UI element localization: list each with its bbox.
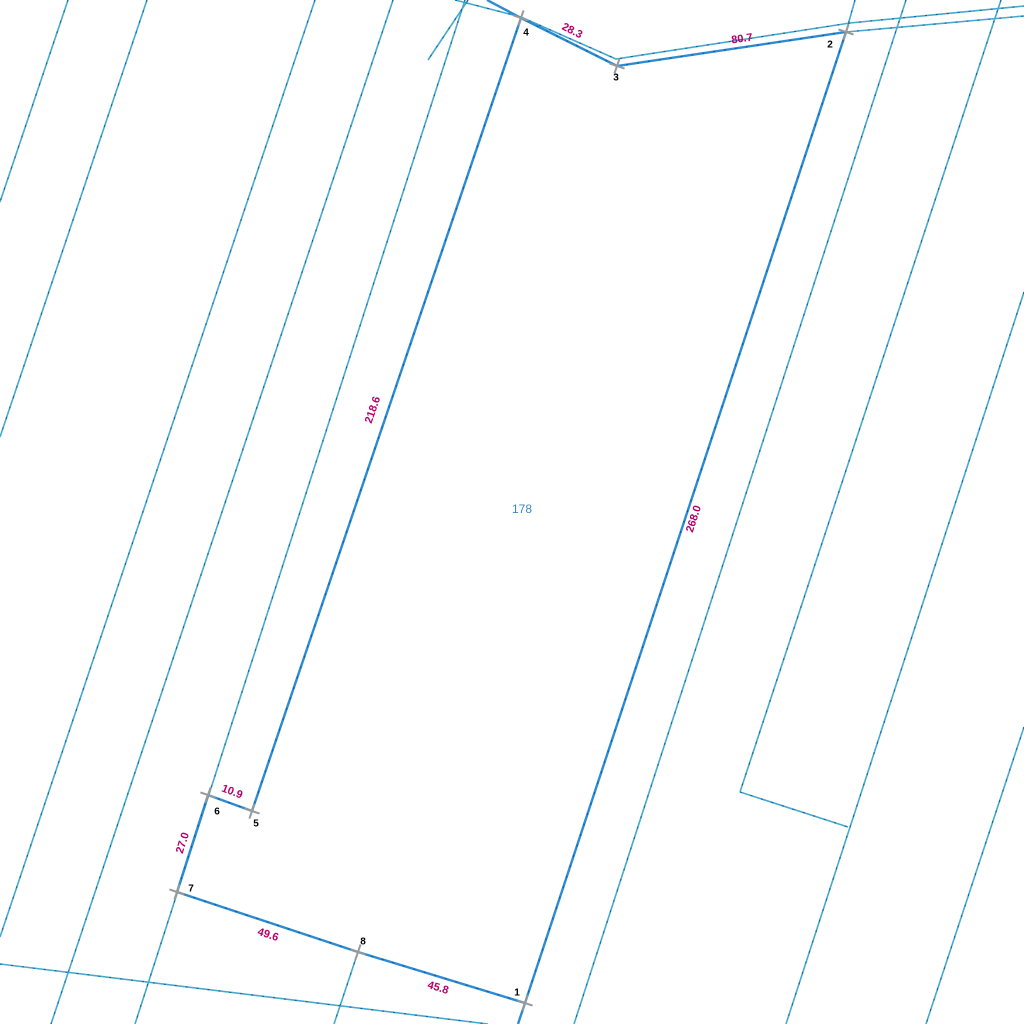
vertex-number-label: 8: [360, 937, 366, 948]
vertex-cross-marker[interactable]: [242, 801, 262, 821]
boundary-line: [740, 0, 1001, 792]
vertex-number-label: 7: [188, 884, 194, 895]
vertex-cross-marker[interactable]: [511, 8, 531, 28]
boundary-line: [0, 0, 315, 937]
edge-length-label: 49.6: [256, 926, 280, 944]
labels-layer: 12345678268.080.728.3218.610.927.049.645…: [174, 21, 833, 999]
vertex-number-label: 1: [514, 988, 520, 999]
edge-length-label: 80.7: [731, 32, 754, 47]
map-viewport[interactable]: 12345678268.080.728.3218.610.927.049.645…: [0, 0, 1024, 1024]
vertex-number-label: 3: [613, 73, 619, 84]
edge-length-label: 10.9: [220, 783, 244, 802]
boundary-line: [455, 0, 1024, 59]
vertex-number-label: 5: [253, 819, 259, 830]
cadastral-map-svg[interactable]: 12345678268.080.728.3218.610.927.049.645…: [0, 0, 1024, 1024]
vertex-number-label: 6: [214, 807, 220, 818]
edge-length-label: 218.6: [363, 395, 383, 425]
vertex-cross-marker[interactable]: [167, 882, 187, 902]
boundary-line-dash: [455, 0, 1024, 59]
parcel-number-label: 178: [512, 502, 532, 516]
boundary-line: [786, 292, 1024, 1024]
boundary-line: [574, 0, 906, 1024]
edge-length-label: 45.8: [426, 979, 450, 997]
edge-length-label: 268.0: [684, 504, 704, 534]
vertex-number-label: 4: [523, 28, 529, 39]
boundary-line: [0, 0, 147, 437]
vertex-cross-marker[interactable]: [198, 785, 218, 805]
boundary-line: [0, 964, 488, 1024]
vertex-number-label: 2: [827, 40, 833, 51]
boundary-line: [0, 0, 68, 202]
